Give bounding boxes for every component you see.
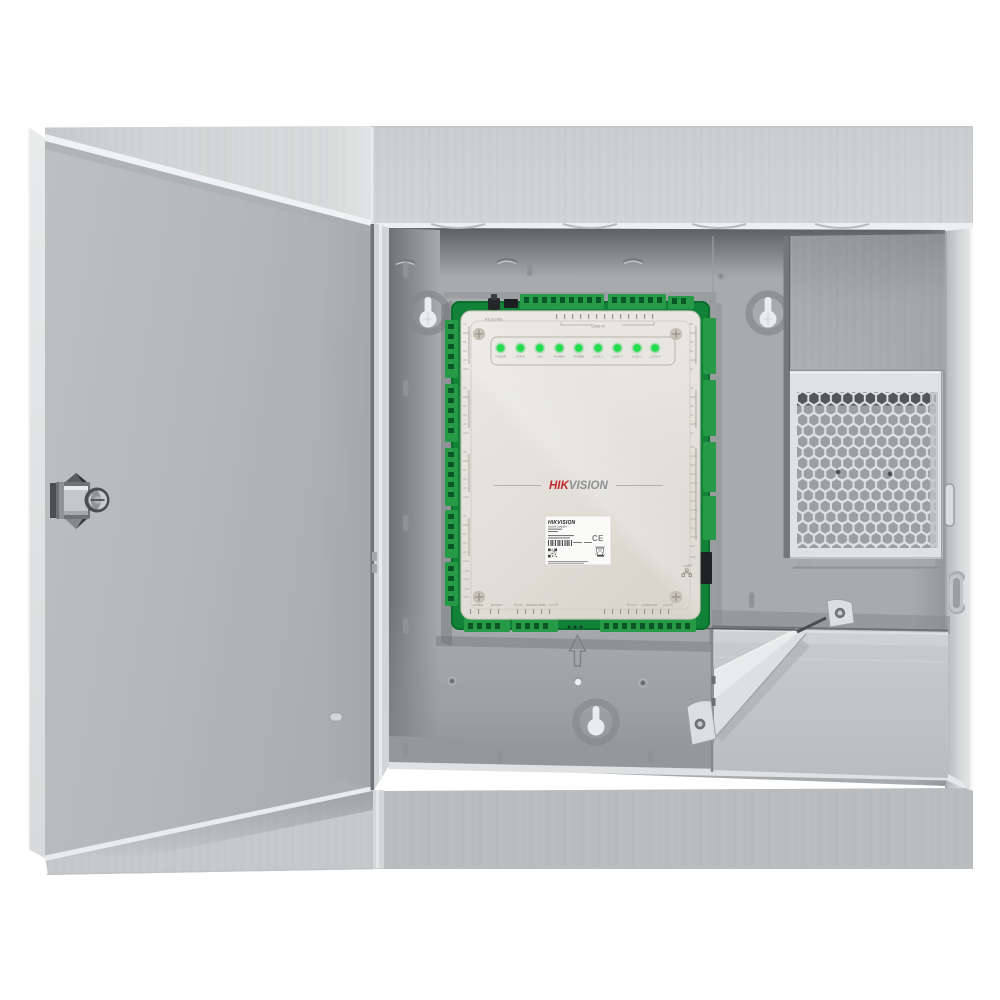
- svg-text:NC2: NC2: [690, 499, 696, 503]
- svg-text:BZ: BZ: [463, 532, 467, 536]
- svg-text:GND: GND: [463, 559, 469, 563]
- svg-text:B4: B4: [690, 322, 694, 326]
- svg-text:W0: W0: [463, 550, 467, 554]
- svg-text:READER RS485: READER RS485: [526, 603, 546, 607]
- svg-text:ERR: ERR: [463, 523, 469, 527]
- svg-text:COM4: COM4: [690, 454, 698, 458]
- svg-text:NC1: NC1: [690, 526, 696, 530]
- svg-text:LAN: LAN: [684, 564, 691, 568]
- svg-text:S2: S2: [690, 413, 694, 417]
- svg-text:S1: S1: [690, 431, 694, 435]
- svg-text:ERR: ERR: [463, 331, 469, 335]
- svg-text:GND: GND: [463, 367, 469, 371]
- svg-text:GND: GND: [463, 495, 469, 499]
- svg-text:W0: W0: [463, 422, 467, 426]
- svg-text:NC4: NC4: [690, 445, 696, 449]
- svg-text:COM1: COM1: [690, 535, 698, 539]
- svg-text:COM3: COM3: [690, 481, 698, 485]
- svg-text:W1: W1: [463, 413, 467, 417]
- svg-text:Access Controller: Access Controller: [548, 526, 567, 529]
- svg-text:GND: GND: [690, 331, 696, 335]
- svg-text:HIKVISION: HIKVISION: [549, 480, 608, 492]
- svg-text:NO1: NO1: [690, 544, 696, 548]
- svg-text:OK: OK: [463, 450, 467, 454]
- svg-text:NO3: NO3: [690, 490, 696, 494]
- svg-text:W0: W0: [463, 486, 467, 490]
- svg-text:+12V: +12V: [463, 569, 469, 573]
- svg-text:COM2: COM2: [690, 508, 698, 512]
- svg-text:W1: W1: [463, 349, 467, 353]
- svg-text:B2: B2: [690, 349, 694, 353]
- svg-text:GND: GND: [463, 577, 469, 581]
- svg-text:BZ: BZ: [463, 468, 467, 472]
- svg-text:CASE IN: CASE IN: [591, 325, 605, 329]
- svg-text:LOCK 4: LOCK 4: [650, 355, 660, 359]
- svg-text:CE: CE: [592, 534, 604, 543]
- svg-text:S4: S4: [690, 386, 694, 390]
- svg-text:ERR: ERR: [463, 395, 469, 399]
- svg-text:W0: W0: [463, 358, 467, 362]
- svg-text:POWER: POWER: [473, 603, 483, 607]
- svg-text:ALARM OUT: ALARM OUT: [642, 603, 658, 607]
- svg-text:LOCK 1: LOCK 1: [593, 355, 603, 359]
- svg-text:B3: B3: [690, 340, 694, 344]
- svg-text:BZ: BZ: [463, 340, 467, 344]
- svg-text:NO2: NO2: [690, 517, 696, 521]
- svg-text:B1: B1: [690, 367, 694, 371]
- svg-text:ERR: ERR: [463, 459, 469, 463]
- svg-text:NC3: NC3: [690, 472, 696, 476]
- svg-text:+12V: +12V: [463, 587, 469, 591]
- svg-text:NO4: NO4: [690, 463, 696, 467]
- svg-text:RESUME: RESUME: [485, 318, 503, 322]
- svg-text:BATTERY: BATTERY: [491, 603, 503, 607]
- svg-text:OK: OK: [463, 514, 467, 518]
- svg-text:W1: W1: [463, 477, 467, 481]
- svg-text:RS485A: RS485A: [554, 355, 565, 359]
- svg-text:STATE: STATE: [516, 355, 525, 359]
- svg-text:POWER: POWER: [495, 355, 506, 359]
- svg-text:S3: S3: [690, 404, 694, 408]
- svg-text:W1: W1: [463, 541, 467, 545]
- svg-text:GND: GND: [690, 422, 696, 426]
- svg-text:LAN: LAN: [537, 355, 542, 359]
- svg-text:RS485B: RS485B: [573, 355, 584, 359]
- svg-text:GND: GND: [690, 555, 696, 559]
- svg-text:GND: GND: [690, 358, 696, 362]
- svg-text:GND: GND: [463, 595, 469, 599]
- svg-text:IN: IN: [690, 563, 693, 567]
- svg-text:GND: GND: [690, 395, 696, 399]
- svg-text:LOCK 2: LOCK 2: [612, 355, 622, 359]
- svg-text:OK: OK: [463, 322, 467, 326]
- svg-text:BZ: BZ: [463, 404, 467, 408]
- svg-text:LOCK 3: LOCK 3: [632, 355, 642, 359]
- svg-text:GND: GND: [463, 431, 469, 435]
- svg-text:OK: OK: [463, 386, 467, 390]
